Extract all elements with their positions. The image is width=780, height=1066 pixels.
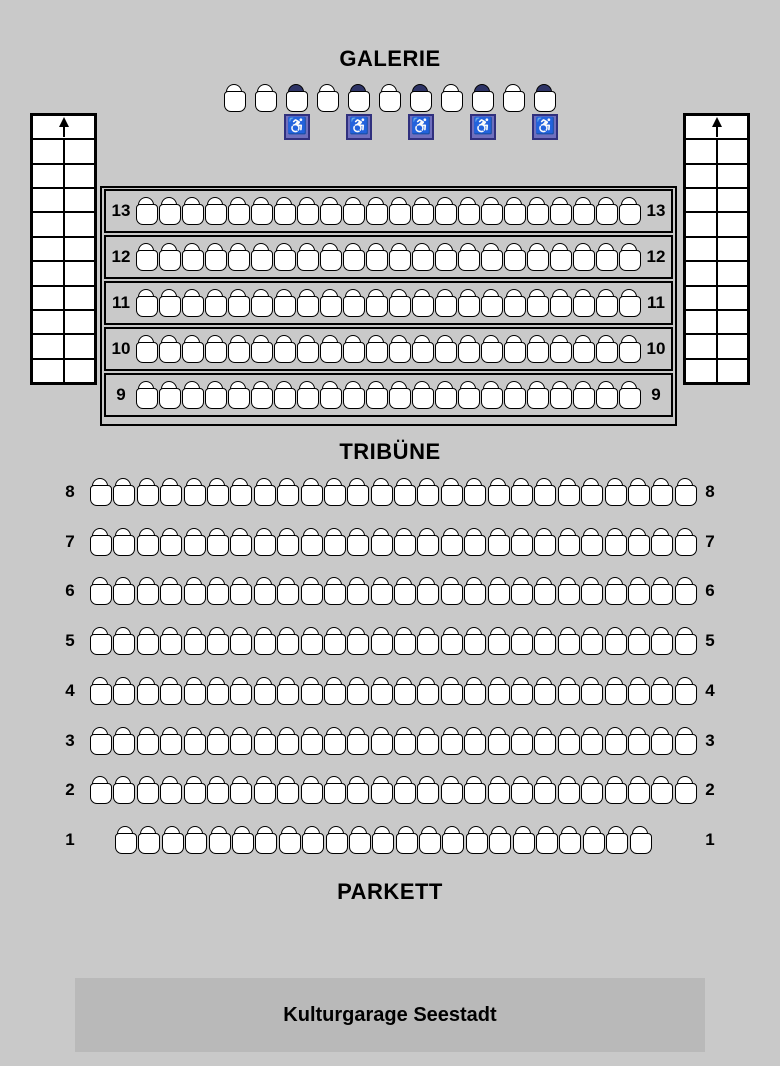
seat[interactable] [441,727,463,755]
seat[interactable] [419,826,441,854]
seat[interactable] [182,243,204,271]
seat[interactable] [207,528,229,556]
seat[interactable] [651,627,673,655]
seat[interactable] [138,826,160,854]
seat[interactable] [320,197,342,225]
seat[interactable] [581,478,603,506]
seat[interactable] [347,627,369,655]
seat[interactable] [435,289,457,317]
wheelchair-seat[interactable]: ♿ [410,84,432,112]
seat[interactable] [651,577,673,605]
seat[interactable] [326,826,348,854]
seat[interactable] [581,677,603,705]
seat[interactable] [651,478,673,506]
seat[interactable] [324,627,346,655]
seat[interactable] [207,727,229,755]
seat[interactable] [255,826,277,854]
seat[interactable] [550,289,572,317]
seat[interactable] [113,577,135,605]
seat[interactable] [628,577,650,605]
seat[interactable] [389,197,411,225]
seat[interactable] [441,84,463,112]
seat[interactable] [488,528,510,556]
seat[interactable] [596,335,618,363]
seat[interactable] [605,478,627,506]
seat[interactable] [511,776,533,804]
seat[interactable] [324,677,346,705]
seat[interactable] [205,197,227,225]
seat[interactable] [481,335,503,363]
seat[interactable] [301,528,323,556]
seat[interactable] [412,243,434,271]
seat[interactable] [254,727,276,755]
seat[interactable] [396,826,418,854]
seat[interactable] [628,677,650,705]
seat[interactable] [675,528,697,556]
seat[interactable] [511,478,533,506]
seat[interactable] [90,478,112,506]
seat[interactable] [441,627,463,655]
seat[interactable] [619,289,641,317]
seat[interactable] [504,335,526,363]
seat[interactable] [558,528,580,556]
seat[interactable] [371,776,393,804]
seat[interactable] [228,243,250,271]
seat[interactable] [113,627,135,655]
seat[interactable] [628,627,650,655]
seat[interactable] [182,197,204,225]
seat[interactable] [343,289,365,317]
seat[interactable] [527,197,549,225]
seat[interactable] [550,335,572,363]
seat[interactable] [606,826,628,854]
seat[interactable] [366,243,388,271]
seat[interactable] [343,381,365,409]
seat[interactable] [113,528,135,556]
seat[interactable] [596,381,618,409]
seat[interactable] [527,335,549,363]
seat[interactable] [277,478,299,506]
seat[interactable] [160,577,182,605]
seat[interactable] [137,627,159,655]
seat[interactable] [441,478,463,506]
seat[interactable] [274,381,296,409]
seat[interactable] [115,826,137,854]
seat[interactable] [389,381,411,409]
seat[interactable] [466,826,488,854]
seat[interactable] [90,677,112,705]
seat[interactable] [581,577,603,605]
seat[interactable] [366,381,388,409]
seat[interactable] [628,776,650,804]
seat[interactable] [347,727,369,755]
seat[interactable] [347,577,369,605]
seat[interactable] [504,381,526,409]
seat[interactable] [488,727,510,755]
seat[interactable] [324,727,346,755]
seat[interactable] [488,478,510,506]
seat[interactable] [320,243,342,271]
seat[interactable] [651,677,673,705]
seat[interactable] [277,627,299,655]
seat[interactable] [559,826,581,854]
seat[interactable] [184,478,206,506]
seat[interactable] [343,335,365,363]
seat[interactable] [550,243,572,271]
seat[interactable] [347,528,369,556]
seat[interactable] [458,335,480,363]
seat[interactable] [279,826,301,854]
seat[interactable] [90,776,112,804]
seat[interactable] [371,627,393,655]
seat[interactable] [534,776,556,804]
seat[interactable] [366,197,388,225]
seat[interactable] [464,577,486,605]
seat[interactable] [137,727,159,755]
seat[interactable] [389,289,411,317]
seat[interactable] [651,727,673,755]
seat[interactable] [230,677,252,705]
seat[interactable] [442,826,464,854]
seat[interactable] [254,528,276,556]
seat[interactable] [394,528,416,556]
seat[interactable] [651,776,673,804]
seat[interactable] [205,289,227,317]
seat[interactable] [619,243,641,271]
seat[interactable] [605,577,627,605]
seat[interactable] [583,826,605,854]
seat[interactable] [136,335,158,363]
seat[interactable] [394,577,416,605]
seat[interactable] [230,627,252,655]
seat[interactable] [441,677,463,705]
seat[interactable] [394,478,416,506]
seat[interactable] [159,243,181,271]
seat[interactable] [207,776,229,804]
seat[interactable] [379,84,401,112]
seat[interactable] [513,826,535,854]
seat[interactable] [301,677,323,705]
seat[interactable] [274,289,296,317]
seat[interactable] [159,197,181,225]
seat[interactable] [274,197,296,225]
seat[interactable] [184,528,206,556]
seat[interactable] [488,776,510,804]
seat[interactable] [301,577,323,605]
seat[interactable] [534,577,556,605]
seat[interactable] [534,528,556,556]
seat[interactable] [159,381,181,409]
seat[interactable] [205,381,227,409]
seat[interactable] [417,528,439,556]
seat[interactable] [458,289,480,317]
seat[interactable] [619,197,641,225]
seat[interactable] [207,478,229,506]
seat[interactable] [511,528,533,556]
seat[interactable] [184,627,206,655]
seat[interactable] [675,677,697,705]
seat[interactable] [372,826,394,854]
seat[interactable] [458,381,480,409]
seat[interactable] [573,381,595,409]
seat[interactable] [558,677,580,705]
seat[interactable] [277,776,299,804]
seat[interactable] [628,478,650,506]
seat[interactable] [137,478,159,506]
seat[interactable] [297,197,319,225]
seat[interactable] [488,627,510,655]
seat[interactable] [136,243,158,271]
seat[interactable] [394,727,416,755]
seat[interactable] [394,677,416,705]
seat[interactable] [254,478,276,506]
seat[interactable] [417,478,439,506]
seat[interactable] [137,677,159,705]
seat[interactable] [417,677,439,705]
seat[interactable] [628,528,650,556]
seat[interactable] [441,577,463,605]
seat[interactable] [113,727,135,755]
seat[interactable] [412,335,434,363]
seat[interactable] [297,243,319,271]
seat[interactable] [160,776,182,804]
seat[interactable] [581,528,603,556]
seat[interactable] [394,627,416,655]
seat[interactable] [113,478,135,506]
seat[interactable] [301,627,323,655]
seat[interactable] [277,577,299,605]
seat[interactable] [581,727,603,755]
seat[interactable] [412,197,434,225]
seat[interactable] [464,776,486,804]
seat[interactable] [481,289,503,317]
seat[interactable] [159,335,181,363]
seat[interactable] [317,84,339,112]
seat[interactable] [389,335,411,363]
seat[interactable] [630,826,652,854]
seat[interactable] [137,528,159,556]
seat[interactable] [137,776,159,804]
seat[interactable] [90,528,112,556]
seat[interactable] [184,677,206,705]
seat[interactable] [619,335,641,363]
seat[interactable] [458,243,480,271]
wheelchair-seat[interactable]: ♿ [472,84,494,112]
seat[interactable] [605,528,627,556]
seat[interactable] [274,335,296,363]
seat[interactable] [394,776,416,804]
seat[interactable] [324,478,346,506]
seat[interactable] [573,243,595,271]
seat[interactable] [527,289,549,317]
seat[interactable] [184,577,206,605]
seat[interactable] [251,381,273,409]
seat[interactable] [389,243,411,271]
seat[interactable] [136,197,158,225]
seat[interactable] [435,243,457,271]
seat[interactable] [675,776,697,804]
seat[interactable] [324,528,346,556]
seat[interactable] [558,776,580,804]
seat[interactable] [527,381,549,409]
seat[interactable] [251,197,273,225]
seat[interactable] [232,826,254,854]
seat[interactable] [605,677,627,705]
seat[interactable] [343,243,365,271]
seat[interactable] [412,381,434,409]
seat[interactable] [675,478,697,506]
seat[interactable] [596,197,618,225]
seat[interactable] [675,627,697,655]
seat[interactable] [90,577,112,605]
seat[interactable] [573,335,595,363]
seat[interactable] [301,727,323,755]
seat[interactable] [347,776,369,804]
seat[interactable] [511,627,533,655]
seat[interactable] [254,627,276,655]
seat[interactable] [534,677,556,705]
seat[interactable] [230,776,252,804]
seat[interactable] [511,677,533,705]
seat[interactable] [464,627,486,655]
seat[interactable] [90,727,112,755]
seat[interactable] [464,727,486,755]
seat[interactable] [417,727,439,755]
seat[interactable] [209,826,231,854]
seat[interactable] [251,289,273,317]
seat[interactable] [182,335,204,363]
seat[interactable] [511,727,533,755]
seat[interactable] [651,528,673,556]
seat[interactable] [481,197,503,225]
seat[interactable] [160,677,182,705]
seat[interactable] [596,289,618,317]
seat[interactable] [550,197,572,225]
seat[interactable] [504,243,526,271]
seat[interactable] [254,677,276,705]
seat[interactable] [489,826,511,854]
seat[interactable] [441,776,463,804]
seat[interactable] [464,478,486,506]
seat[interactable] [464,528,486,556]
seat[interactable] [366,289,388,317]
seat[interactable] [558,727,580,755]
seat[interactable] [162,826,184,854]
seat[interactable] [137,577,159,605]
seat[interactable] [417,776,439,804]
seat[interactable] [324,577,346,605]
seat[interactable] [605,727,627,755]
seat[interactable] [113,677,135,705]
seat[interactable] [581,627,603,655]
seat[interactable] [160,528,182,556]
seat[interactable] [550,381,572,409]
seat[interactable] [324,776,346,804]
seat[interactable] [347,478,369,506]
seat[interactable] [619,381,641,409]
seat[interactable] [511,577,533,605]
seat[interactable] [255,84,277,112]
seat[interactable] [301,776,323,804]
seat[interactable] [503,84,525,112]
seat[interactable] [417,627,439,655]
seat[interactable] [573,289,595,317]
seat[interactable] [184,776,206,804]
seat[interactable] [320,289,342,317]
seat[interactable] [254,577,276,605]
seat[interactable] [441,528,463,556]
seat[interactable] [417,577,439,605]
seat[interactable] [251,335,273,363]
seat[interactable] [435,197,457,225]
seat[interactable] [488,577,510,605]
seat[interactable] [481,243,503,271]
seat[interactable] [182,381,204,409]
seat[interactable] [160,478,182,506]
seat[interactable] [534,627,556,655]
seat[interactable] [534,727,556,755]
seat[interactable] [481,381,503,409]
seat[interactable] [605,627,627,655]
seat[interactable] [320,335,342,363]
seat[interactable] [160,627,182,655]
seat[interactable] [184,727,206,755]
seat[interactable] [504,197,526,225]
seat[interactable] [349,826,371,854]
seat[interactable] [160,727,182,755]
seat[interactable] [230,528,252,556]
seat[interactable] [458,197,480,225]
seat[interactable] [185,826,207,854]
seat[interactable] [90,627,112,655]
seat[interactable] [320,381,342,409]
seat[interactable] [207,677,229,705]
seat[interactable] [302,826,324,854]
seat[interactable] [277,727,299,755]
seat[interactable] [254,776,276,804]
seat[interactable] [534,478,556,506]
seat[interactable] [371,528,393,556]
seat[interactable] [230,727,252,755]
seat[interactable] [435,335,457,363]
seat[interactable] [136,289,158,317]
seat[interactable] [230,478,252,506]
seat[interactable] [343,197,365,225]
seat[interactable] [371,677,393,705]
seat[interactable] [675,727,697,755]
seat[interactable] [366,335,388,363]
seat[interactable] [274,243,296,271]
wheelchair-seat[interactable]: ♿ [286,84,308,112]
seat[interactable] [224,84,246,112]
seat[interactable] [464,677,486,705]
seat[interactable] [435,381,457,409]
seat[interactable] [277,677,299,705]
seat[interactable] [207,577,229,605]
seat[interactable] [371,577,393,605]
seat[interactable] [628,727,650,755]
seat[interactable] [301,478,323,506]
seat[interactable] [277,528,299,556]
seat[interactable] [558,627,580,655]
seat[interactable] [251,243,273,271]
seat[interactable] [297,289,319,317]
seat[interactable] [536,826,558,854]
seat[interactable] [371,478,393,506]
seat[interactable] [182,289,204,317]
seat[interactable] [159,289,181,317]
seat[interactable] [113,776,135,804]
